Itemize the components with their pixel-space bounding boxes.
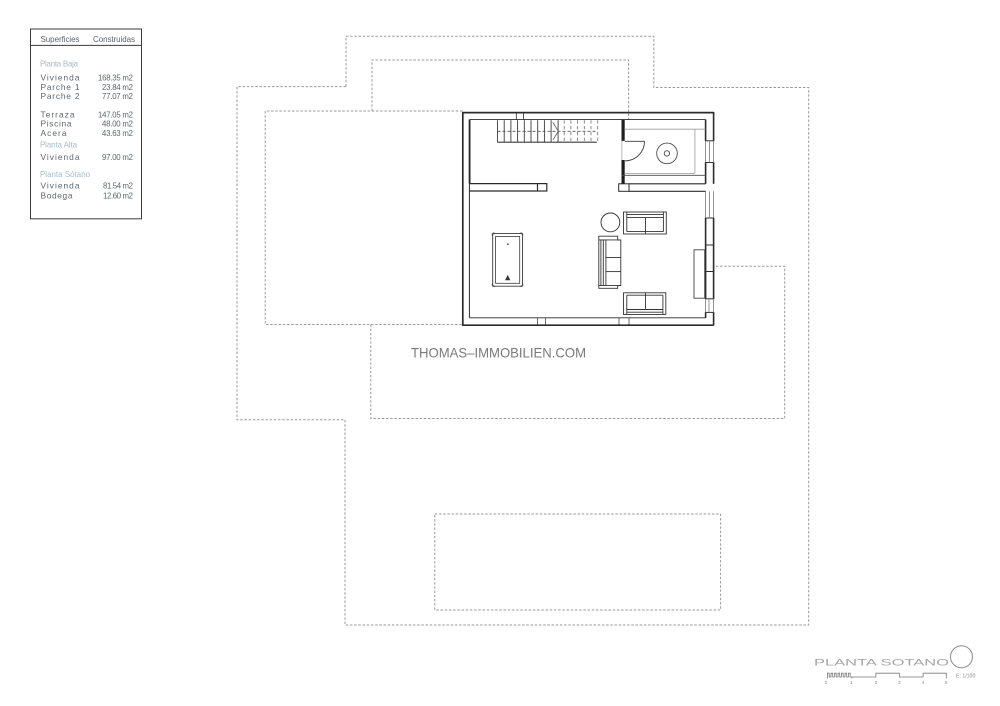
svg-text:Vivienda: Vivienda <box>41 73 80 83</box>
svg-text:0: 0 <box>825 680 828 685</box>
svg-text:4: 4 <box>922 680 925 685</box>
svg-text:Acera: Acera <box>41 128 67 138</box>
svg-text:Vivienda: Vivienda <box>41 181 80 191</box>
svg-text:3: 3 <box>898 680 901 685</box>
svg-text:E: 1/100: E: 1/100 <box>956 674 975 680</box>
svg-text:Construidas: Construidas <box>93 35 135 44</box>
svg-text:81.54 m2: 81.54 m2 <box>103 182 133 191</box>
svg-text:Planta Sótano: Planta Sótano <box>40 170 91 179</box>
svg-text:Planta Baja: Planta Baja <box>40 59 79 68</box>
svg-text:PLANTA SOTANO: PLANTA SOTANO <box>814 658 949 669</box>
svg-text:Parche 2: Parche 2 <box>41 91 80 101</box>
svg-text:77.07 m2: 77.07 m2 <box>102 92 133 101</box>
svg-text:Planta Alta: Planta Alta <box>40 140 78 149</box>
svg-text:48.00 m2: 48.00 m2 <box>102 120 133 129</box>
svg-text:12.60 m2: 12.60 m2 <box>103 191 133 200</box>
svg-text:23.84 m2: 23.84 m2 <box>102 83 133 92</box>
svg-text:5: 5 <box>945 680 948 685</box>
svg-text:Superficies: Superficies <box>41 35 80 44</box>
svg-text:147.05 m2: 147.05 m2 <box>98 111 133 120</box>
svg-text:Bodega: Bodega <box>41 190 73 200</box>
svg-text:97.00 m2: 97.00 m2 <box>102 153 133 162</box>
svg-text:43.63 m2: 43.63 m2 <box>102 129 133 138</box>
svg-text:1: 1 <box>850 680 853 685</box>
svg-text:THOMAS–IMMOBILIEN.COM: THOMAS–IMMOBILIEN.COM <box>411 345 586 361</box>
svg-text:168.35 m2: 168.35 m2 <box>98 74 133 83</box>
svg-text:2: 2 <box>875 680 878 685</box>
svg-text:Vivienda: Vivienda <box>41 152 80 162</box>
